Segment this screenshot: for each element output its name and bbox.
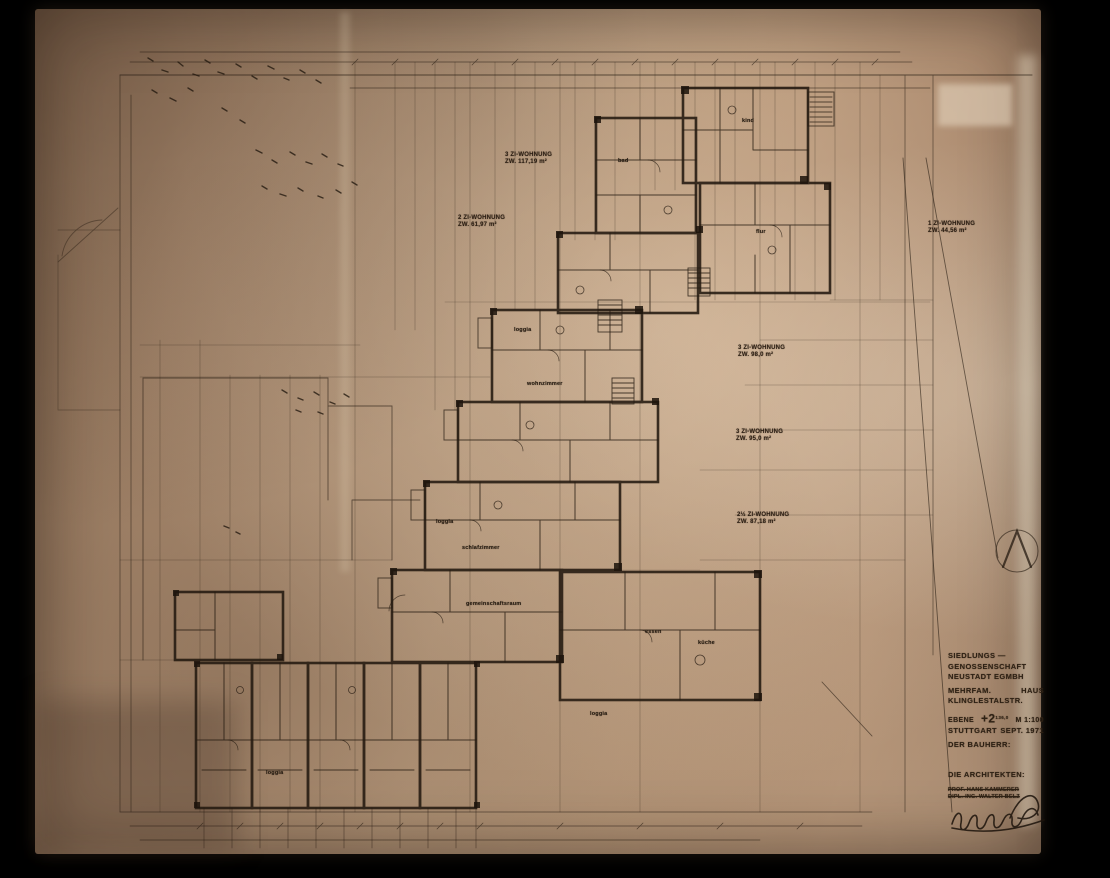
apartment-label: 3 ZI-WOHNUNGZW. 98,0 m² bbox=[738, 345, 785, 359]
project-street: KLINGLESTALSTR. bbox=[948, 696, 1044, 707]
room-label: schlafzimmer bbox=[462, 545, 500, 551]
client-name: NEUSTADT EGMBH bbox=[948, 672, 1044, 683]
apartment-label: 1 ZI-WOHNUNGZW. 44,56 m² bbox=[928, 221, 975, 235]
room-label: loggia bbox=[266, 770, 283, 776]
date: SEPT. 1971 bbox=[1000, 726, 1044, 737]
apartment-label: 3 ZI-WOHNUNGZW. 95,0 m² bbox=[736, 429, 783, 443]
level-label: EBENE bbox=[948, 716, 974, 727]
stair-symbols bbox=[598, 268, 710, 404]
level-and-scale: EBENE +2136,0 M 1:100 bbox=[948, 713, 1044, 727]
room-label: kind bbox=[742, 118, 754, 124]
bottom-grid-ticks bbox=[204, 808, 476, 848]
level-value: +2136,0 bbox=[981, 713, 1009, 727]
apartment-label: 3 ZI-WOHNUNGZW. 117,19 m² bbox=[505, 152, 552, 166]
bauherr-label: DER BAUHERR: bbox=[948, 740, 1044, 751]
city-and-date: STUTTGART SEPT. 1971 bbox=[948, 726, 1044, 737]
apartment-label: 2 ZI-WOHNUNGZW. 61,97 m² bbox=[458, 215, 505, 229]
dimension-lines bbox=[120, 52, 1032, 840]
interior-partitions bbox=[175, 88, 830, 770]
scale-value: M 1:100 bbox=[1016, 716, 1044, 727]
room-label: flur bbox=[756, 229, 766, 235]
north-marker-icon bbox=[996, 530, 1038, 572]
handwritten-signature bbox=[940, 782, 1070, 842]
apartment-label: 2½ ZI-WOHNUNGZW. 87,18 m² bbox=[737, 512, 789, 526]
grid-lines-horizontal bbox=[120, 300, 933, 660]
project-type: MEHRFAM. bbox=[948, 686, 991, 697]
slide-photo: 3 ZI-WOHNUNGZW. 117,19 m² 2 ZI-WOHNUNGZW… bbox=[0, 0, 1110, 878]
city: STUTTGART bbox=[948, 726, 997, 737]
architects-label: DIE ARCHITEKTEN: bbox=[948, 770, 1044, 781]
building-walls bbox=[175, 88, 830, 808]
floor-plan-linework bbox=[0, 0, 1110, 878]
project-type: HAUS bbox=[1021, 686, 1044, 697]
room-label: loggia bbox=[436, 519, 453, 525]
client-name: SIEDLUNGS — bbox=[948, 651, 1044, 662]
room-label: loggia bbox=[590, 711, 607, 717]
room-label: loggia bbox=[514, 327, 531, 333]
client-name: GENOSSENSCHAFT bbox=[948, 662, 1044, 673]
room-label: bad bbox=[618, 158, 628, 164]
room-label: essen bbox=[645, 629, 662, 635]
title-block: SIEDLUNGS — GENOSSENSCHAFT NEUSTADT EGMB… bbox=[948, 651, 1044, 801]
room-label: küche bbox=[698, 640, 715, 646]
room-label: gemeinschaftsraum bbox=[466, 601, 521, 607]
vegetation-marks bbox=[148, 58, 357, 534]
room-label: wohnzimmer bbox=[527, 381, 563, 387]
project-title: MEHRFAM. HAUS bbox=[948, 686, 1044, 697]
